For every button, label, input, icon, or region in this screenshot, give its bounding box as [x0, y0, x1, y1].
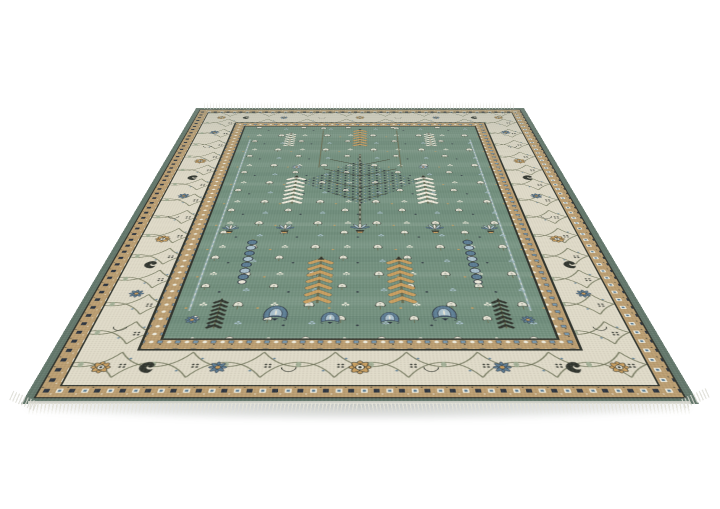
rug-product-photo	[0, 0, 720, 509]
rug-perspective-wrap	[21, 108, 699, 404]
distance-haze	[21, 108, 699, 404]
oriental-rug	[21, 108, 699, 404]
